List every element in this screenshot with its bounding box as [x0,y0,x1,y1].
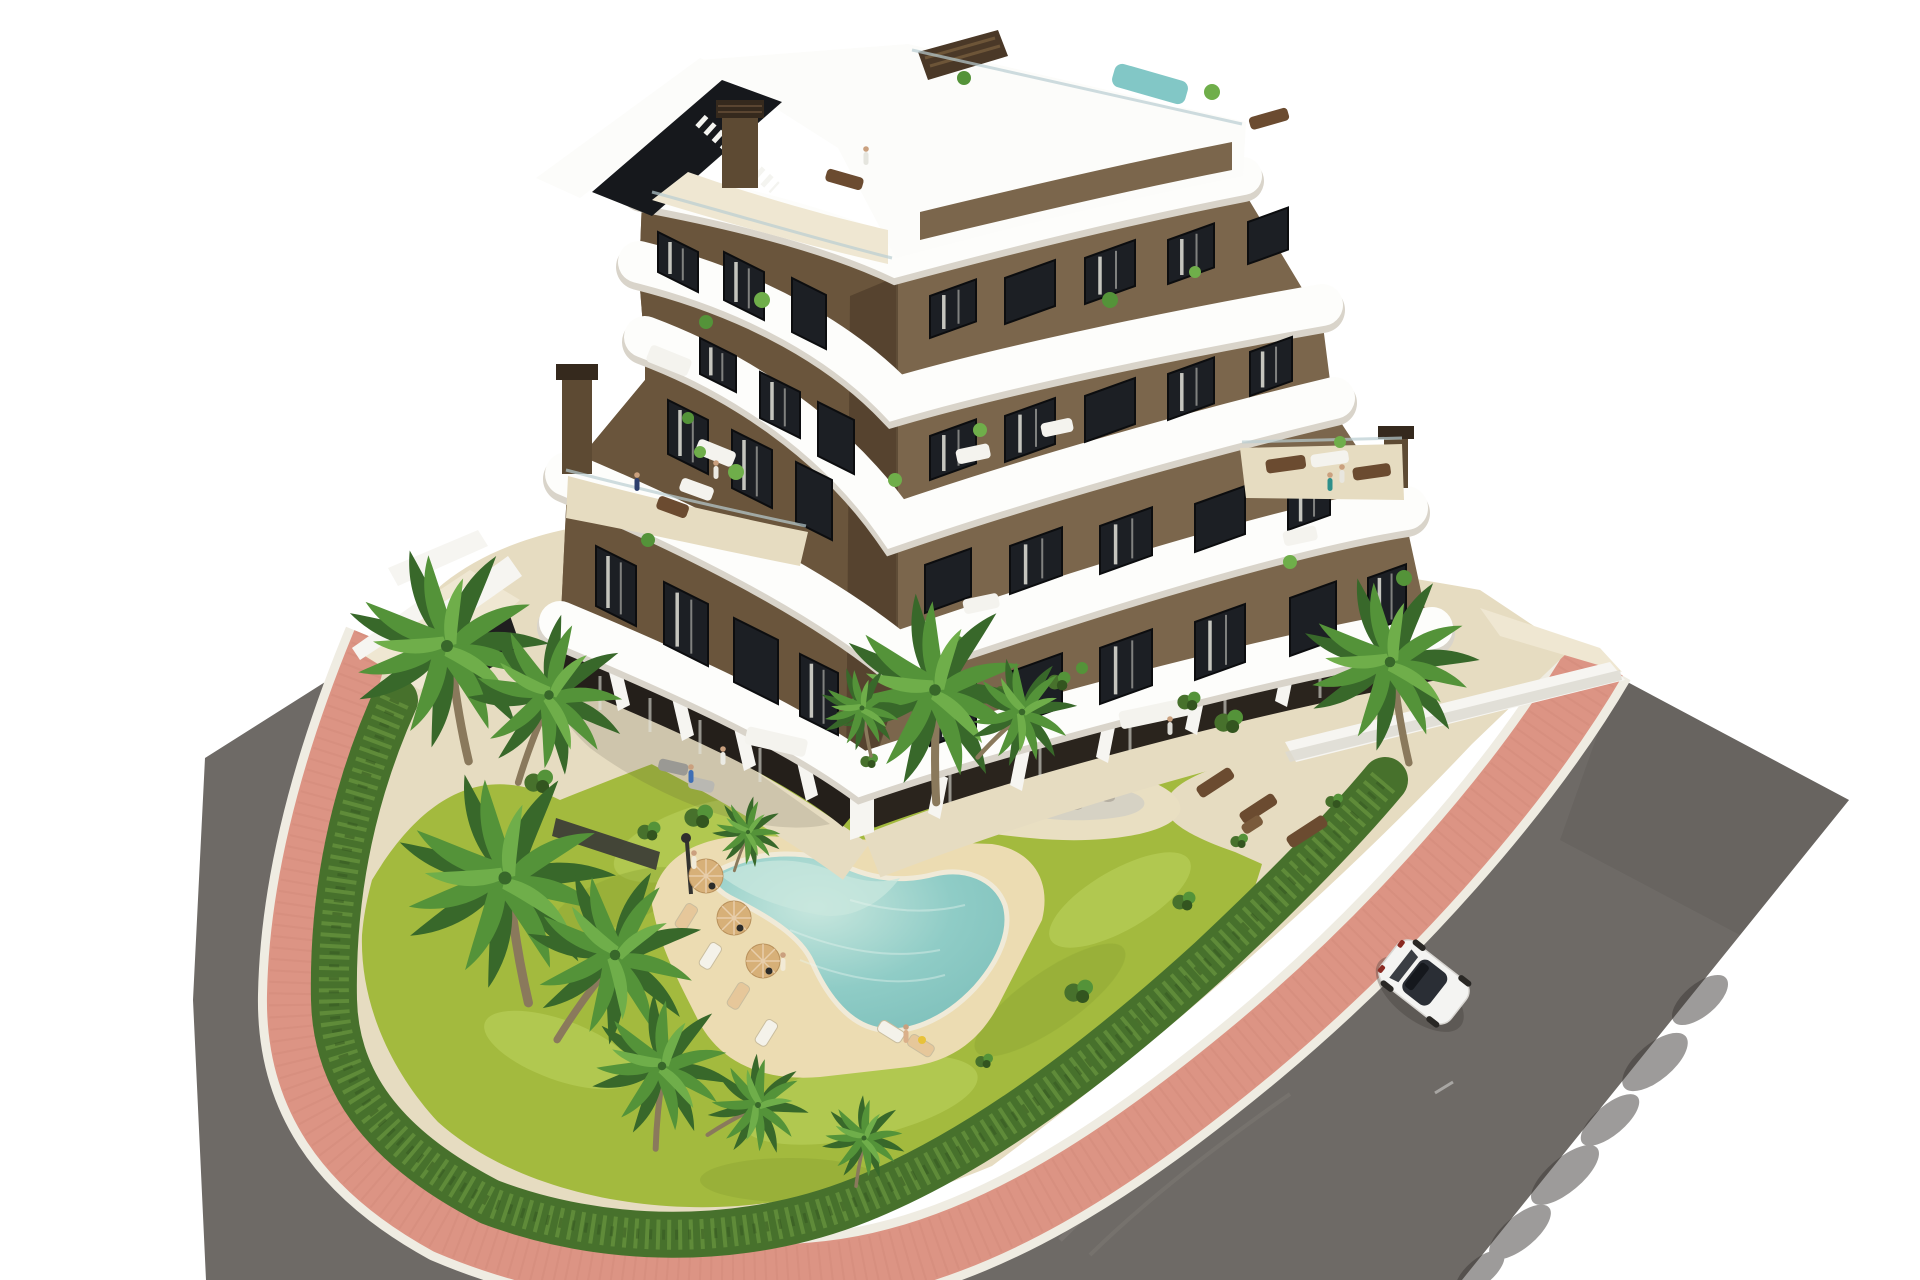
potted-plant [973,423,987,437]
person [634,472,640,491]
potted-plant [1204,84,1220,100]
person [1327,472,1333,491]
person [863,146,869,165]
potted-plant [1102,292,1118,308]
potted-plant [699,315,713,329]
person [780,952,786,971]
potted-plant [694,446,706,458]
potted-plant [728,464,744,480]
potted-plant [682,412,694,424]
architectural-render-canvas [0,0,1920,1280]
beach-bag [918,1036,926,1044]
potted-plant [641,533,655,547]
person [720,746,726,765]
potted-plant [888,473,902,487]
person [713,460,719,479]
potted-plant [1396,570,1412,586]
person [903,1024,909,1043]
person [691,850,697,869]
potted-plant [1283,555,1297,569]
potted-plant [957,71,971,85]
potted-plant [754,292,770,308]
potted-plant [1076,662,1088,674]
parasol [717,901,751,935]
potted-plant [1334,436,1346,448]
potted-plant [1189,266,1201,278]
person [1339,464,1345,483]
scene-svg [0,0,1920,1280]
parasol [746,944,780,978]
person [1167,716,1173,735]
person [688,764,694,783]
